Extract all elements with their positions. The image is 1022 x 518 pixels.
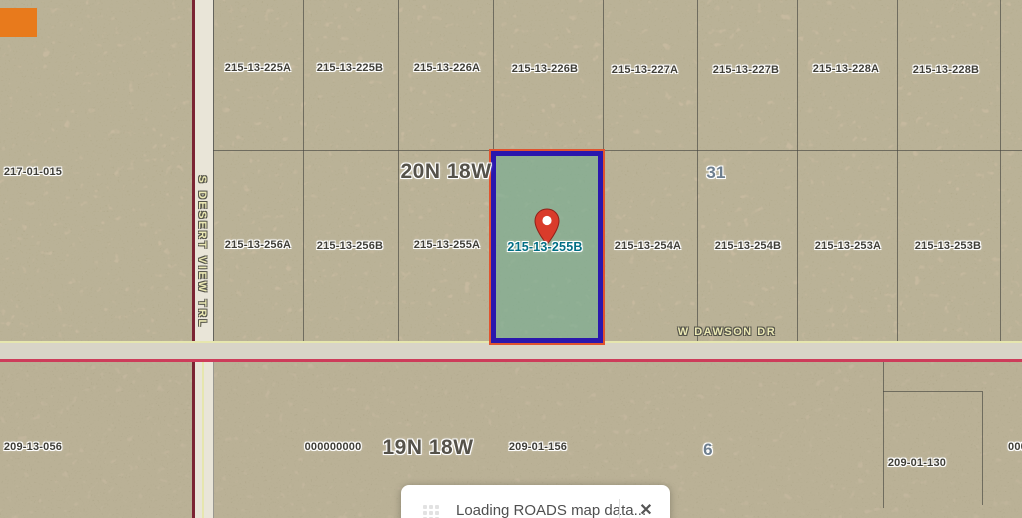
parcel-label[interactable]: 215-13-226A: [414, 62, 480, 74]
loading-message: Loading ROADS map data...: [456, 502, 646, 518]
parcel-label[interactable]: 215-13-228B: [913, 64, 979, 76]
township-label-lower: 19N 18W: [382, 436, 473, 460]
section-number-upper: 31: [706, 163, 725, 183]
road-name-dawson-dr: W DAWSON DR: [678, 326, 776, 338]
gis-map-canvas[interactable]: 215-13-225A 215-13-225B 215-13-226A 215-…: [0, 0, 1022, 518]
parcel-label[interactable]: 215-13-255A: [414, 239, 480, 251]
township-label-upper: 20N 18W: [400, 160, 491, 184]
road-dawson-drive: [0, 341, 1022, 362]
parcel-label[interactable]: 215-13-225B: [317, 62, 383, 74]
close-icon[interactable]: ✕: [629, 497, 663, 518]
parcel-label[interactable]: 215-13-253B: [915, 240, 981, 252]
parcel-label[interactable]: 215-13-254B: [715, 240, 781, 252]
road-name-desert-view-trl: S DESERT VIEW TRL: [196, 175, 208, 328]
parcel-label[interactable]: 215-13-225A: [225, 62, 291, 74]
selected-parcel-label[interactable]: 215-13-255B: [507, 240, 582, 254]
parcel-label[interactable]: 215-13-256A: [225, 239, 291, 251]
parcel-label[interactable]: 215-13-227B: [713, 64, 779, 76]
parcel-label[interactable]: 217-01-015: [4, 166, 62, 178]
parcel-label[interactable]: 215-13-253A: [815, 240, 881, 252]
loading-dialog: Loading ROADS map data... ✕: [401, 485, 670, 518]
toolbar-fragment: [0, 8, 37, 37]
parcel-label[interactable]: 209-01-130: [888, 457, 946, 469]
road-edge-line: [202, 362, 204, 518]
loading-spinner-icon: [423, 505, 441, 518]
parcel-label[interactable]: 209-13-056: [4, 441, 62, 453]
parcel-label[interactable]: 215-13-228A: [813, 63, 879, 75]
parcel-label[interactable]: 215-13-227A: [612, 64, 678, 76]
parcel-label[interactable]: 215-13-226B: [512, 63, 578, 75]
parcel-label[interactable]: 215-13-254A: [615, 240, 681, 252]
parcel-label[interactable]: 000000000: [305, 441, 362, 453]
parcel-label-clipped[interactable]: 000: [1008, 441, 1022, 453]
parcel-label[interactable]: 209-01-156: [509, 441, 567, 453]
section-number-lower: 6: [703, 440, 713, 460]
parcel-label[interactable]: 215-13-256B: [317, 240, 383, 252]
dialog-divider: [619, 499, 620, 518]
